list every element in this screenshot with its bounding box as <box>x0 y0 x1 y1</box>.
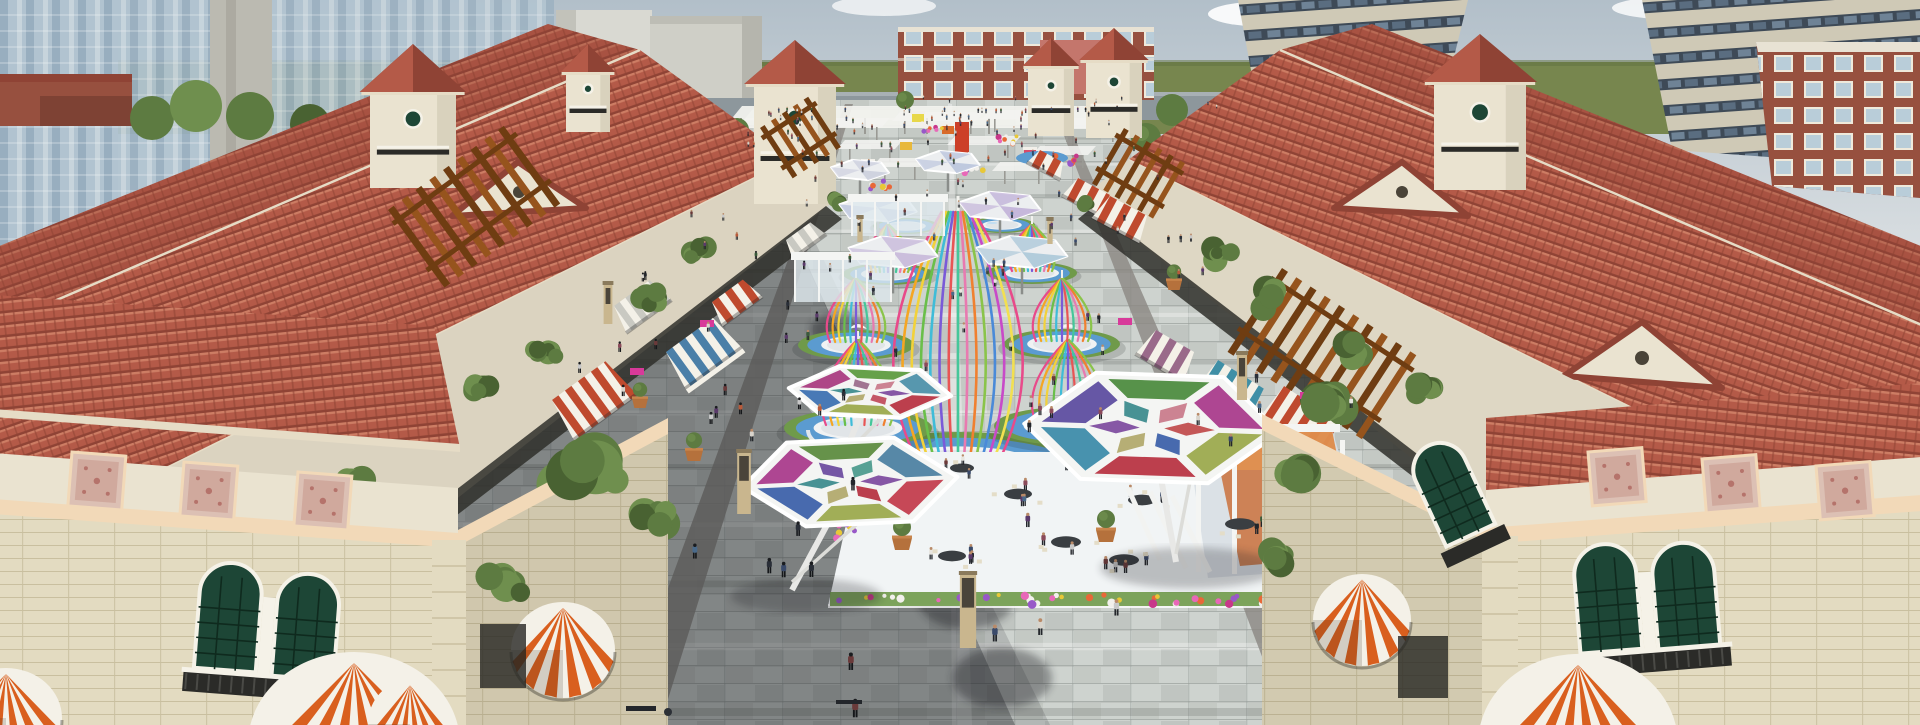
market-shade <box>892 112 984 121</box>
shop-sign <box>630 368 644 375</box>
cafe-table <box>1004 489 1032 500</box>
low-red-buildings-left <box>0 74 132 126</box>
tile-medallion <box>294 472 352 530</box>
tile-medallion <box>68 452 126 510</box>
cafe-table <box>938 551 966 562</box>
cafe-table <box>1225 518 1255 529</box>
cafe-table <box>1051 536 1081 547</box>
glass-pavilion <box>791 252 895 302</box>
market-stall <box>912 113 924 122</box>
striped-dome-awning <box>511 602 615 700</box>
market-shade <box>837 140 903 149</box>
architectural-render <box>0 0 1920 725</box>
striped-dome-awning <box>1313 574 1411 668</box>
shop-sign <box>1118 318 1132 325</box>
tile-medallion <box>1702 455 1760 513</box>
tile-medallion <box>180 462 238 520</box>
tile-medallion <box>1816 462 1874 520</box>
tile-medallion <box>1588 448 1646 506</box>
market-stall <box>900 141 912 150</box>
market-stall <box>942 125 954 134</box>
red-kiosk <box>955 122 969 152</box>
plaza-render-canvas <box>0 0 1920 725</box>
